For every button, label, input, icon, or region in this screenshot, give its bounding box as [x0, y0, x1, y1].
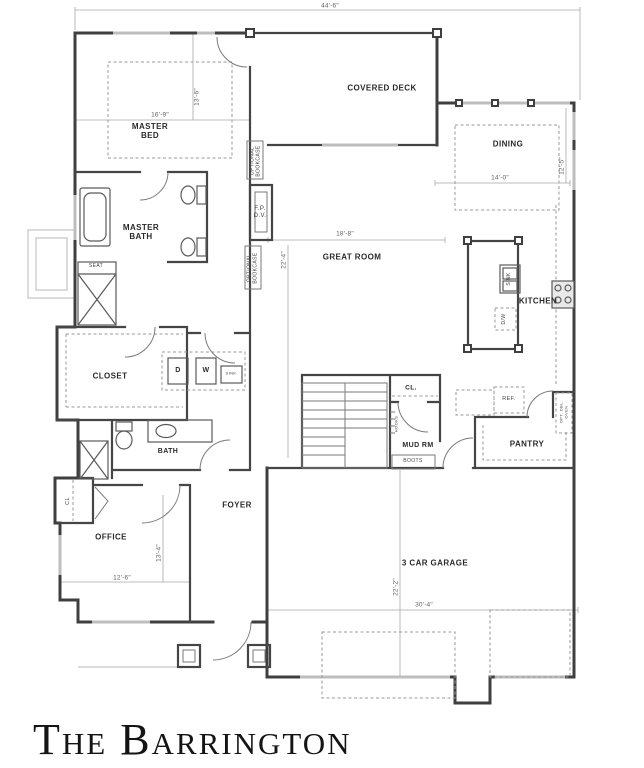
island-post	[515, 345, 522, 352]
fixture-label-hooks: HOOKS	[395, 416, 400, 432]
room-label-master-bed: MASTER BED	[126, 122, 174, 140]
fixture-label-dryer: D	[175, 367, 180, 375]
dim-great-room-depth: 22'-4"	[280, 251, 287, 269]
fixture-label-seat: SEAT	[89, 264, 103, 270]
room-label-bath: BATH	[158, 448, 179, 456]
room-label-foyer: FOYER	[222, 500, 252, 509]
dim-garage-width: 30'-4"	[415, 601, 433, 608]
floor-plan-linework	[0, 0, 644, 768]
plan-title: The Barrington	[33, 714, 352, 765]
kitchen-island	[468, 241, 518, 349]
room-label-pantry: PANTRY	[510, 439, 544, 448]
room-label-kitchen: KITCHEN	[519, 296, 557, 305]
dimension-lines	[60, 7, 580, 677]
dim-dining-depth: 12'-5"	[558, 157, 565, 175]
fixture-label-island-sink: SINK	[507, 272, 513, 285]
room-label-great-room: GREAT ROOM	[323, 252, 382, 261]
room-label-covered-deck: COVERED DECK	[347, 83, 416, 92]
note-optional-bookcase-upper: OPTIONAL BOOKCASE	[250, 138, 262, 184]
fixture-label-dishwasher: D/W	[502, 314, 508, 325]
room-label-closet: CLOSET	[93, 371, 128, 380]
closet-label-mud: CL.	[405, 384, 417, 391]
dim-dining-width: 14'-0"	[491, 174, 509, 181]
fixture-label-fridge: REF.	[502, 396, 516, 402]
island-post	[515, 237, 522, 244]
note-optional-bookcase-lower: OPTIONAL BOOKCASE	[247, 245, 259, 291]
deck-post	[433, 29, 441, 37]
window-post	[492, 100, 498, 106]
dim-garage-depth: 22'-2"	[392, 578, 399, 596]
fixture-label-laundry-sink: SINK	[226, 372, 237, 377]
porch-columns	[178, 645, 270, 667]
deck-post	[246, 29, 254, 37]
dim-master-bed-depth: 13'-6"	[193, 88, 200, 106]
floor-plan: 44'-6" COVERED DECK MASTER BED 16'-9" 13…	[0, 0, 644, 768]
room-label-master-bath: MASTER BATH	[116, 223, 166, 241]
fixture-label-washer: W	[202, 367, 209, 375]
note-fireplace: F.P. D.V.	[254, 206, 267, 220]
interior-walls	[57, 67, 574, 622]
bifold-door	[95, 487, 108, 519]
fireplace-label-line1: F.P.	[254, 206, 267, 213]
window-post	[456, 100, 462, 106]
room-label-dining: DINING	[493, 139, 523, 148]
dim-master-bed-width: 16'-9"	[151, 111, 169, 118]
toilet	[197, 186, 206, 204]
window-post	[528, 100, 534, 106]
room-label-office: OFFICE	[95, 532, 127, 541]
toilet	[116, 422, 132, 431]
fireplace-label-line2: D.V.	[254, 213, 267, 220]
island-post	[464, 345, 471, 352]
stairs	[302, 383, 387, 468]
dim-office-depth: 13'-4"	[155, 544, 162, 562]
dim-great-room-width: 18'-8"	[336, 230, 354, 237]
overall-width-dim: 44'-6"	[321, 2, 339, 9]
fixture-label-boots: BOOTS	[403, 459, 423, 465]
dim-office-width: 12'-6"	[113, 574, 131, 581]
room-label-garage: 3 CAR GARAGE	[402, 558, 468, 567]
vanity	[148, 420, 212, 442]
master-shower	[78, 262, 116, 325]
island-post	[464, 237, 471, 244]
dashed-features	[66, 62, 572, 698]
room-label-mud-room: MUD RM	[402, 442, 433, 450]
closet-label-office: CL	[65, 497, 71, 505]
note-opt-double-oven: OPT. DBL. OVEN	[559, 395, 568, 429]
toilet	[197, 238, 206, 256]
